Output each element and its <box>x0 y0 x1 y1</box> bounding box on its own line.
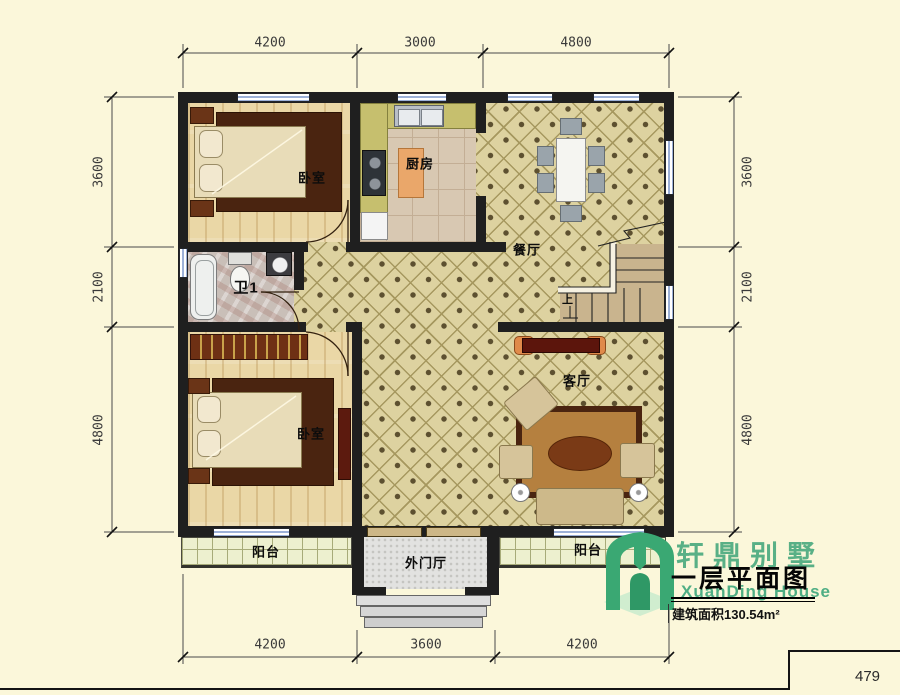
label-bath: 卫1 <box>233 277 258 298</box>
side-table <box>511 483 530 502</box>
wall-mid-right <box>346 242 506 252</box>
armchair <box>499 445 533 479</box>
frame-corner-line <box>788 650 900 652</box>
window-bathroom <box>179 248 188 278</box>
dim-bottom-3: 4200 <box>566 638 597 653</box>
dim-top-3: 4800 <box>560 36 591 51</box>
stove <box>362 150 386 196</box>
dim-right-3: 4800 <box>741 414 756 445</box>
window-dining-right <box>593 93 640 102</box>
kitchen-sink <box>394 105 444 127</box>
dim-left-3: 4800 <box>92 414 107 445</box>
wall-bed2-right <box>352 332 362 526</box>
wall-foyer-stub-left <box>352 587 386 595</box>
title-underline <box>671 597 815 599</box>
label-dining: 餐厅 <box>513 240 541 259</box>
dining-chair <box>560 118 582 135</box>
sink-basin <box>421 109 443 126</box>
dining-chair <box>560 205 582 222</box>
bathtub <box>190 254 217 320</box>
wall-left <box>178 92 188 537</box>
wall-kitchen-dining-top <box>476 103 486 133</box>
tv-stand-bar <box>522 338 600 353</box>
label-foyer: 外门厅 <box>405 553 447 572</box>
pillow <box>197 396 221 423</box>
wall-living-dining <box>498 322 664 332</box>
wall-bath-right <box>294 252 304 290</box>
window-bedroom-bottom <box>213 528 290 537</box>
window-dining-left <box>507 93 553 102</box>
rug-oval <box>548 436 612 471</box>
label-kitchen: 厨房 <box>406 154 434 173</box>
dining-table <box>556 138 586 202</box>
bathtub-inner <box>195 260 214 316</box>
label-bedroom-bottom: 卧室 <box>297 424 325 443</box>
label-balcony-left: 阳台 <box>252 542 280 561</box>
entry-step <box>364 617 483 628</box>
wardrobe <box>190 334 308 360</box>
window-bedroom-top <box>237 93 310 102</box>
side-table <box>629 483 648 502</box>
dim-left-1: 3600 <box>92 156 107 187</box>
pillow <box>197 430 221 457</box>
pillow <box>199 164 223 192</box>
wall-mid-left <box>188 242 308 252</box>
wall-bed2-top <box>188 322 306 332</box>
wall-bed2-hinge <box>346 322 362 332</box>
nightstand <box>188 378 210 394</box>
nightstand <box>190 107 214 124</box>
floorplan-page: 卧室 厨房 餐厅 卫1 卧室 客厅 阳台 外门厅 阳台 上 4200 3000 … <box>0 0 900 695</box>
dim-right-1: 3600 <box>741 156 756 187</box>
label-living: 客厅 <box>563 371 591 390</box>
window-dining-east <box>665 140 674 195</box>
sofa <box>536 488 624 525</box>
bathroom-vanity <box>266 252 292 276</box>
building-area-text: 建筑面积130.54m² <box>668 604 780 623</box>
window-kitchen <box>397 93 447 102</box>
label-stairs-up: 上 <box>562 291 574 307</box>
entry-door-leaf <box>426 527 481 537</box>
dim-top-2: 3000 <box>404 36 435 51</box>
dim-right-2: 2100 <box>741 271 756 302</box>
sink-basin <box>398 109 420 126</box>
wall-foyer-stub-right <box>465 587 499 595</box>
dim-top-1: 4200 <box>254 36 285 51</box>
nightstand <box>188 468 210 484</box>
window-stairs <box>665 285 674 320</box>
toilet-tank <box>228 252 252 265</box>
frame-corner-connector <box>788 650 790 690</box>
pillow <box>199 130 223 158</box>
dining-chair <box>537 146 554 166</box>
tv-cabinet <box>338 408 351 480</box>
tv-stand <box>514 336 606 353</box>
fridge <box>361 212 388 240</box>
label-bedroom-top: 卧室 <box>298 168 326 187</box>
dim-left-2: 2100 <box>92 271 107 302</box>
entry-step <box>360 606 487 617</box>
armchair <box>620 443 655 478</box>
dim-bottom-1: 4200 <box>254 638 285 653</box>
dining-chair <box>537 173 554 193</box>
title-underline <box>671 601 815 602</box>
dining-chair <box>588 146 605 166</box>
frame-bottom-line <box>0 688 789 690</box>
drawing-title: 一层平面图 <box>671 559 811 595</box>
entry-door-leaf <box>367 527 422 537</box>
page-number: 479 <box>855 668 880 685</box>
nightstand <box>190 200 214 217</box>
dim-bottom-2: 3600 <box>410 638 441 653</box>
logo-arch-inner <box>630 573 650 610</box>
dining-chair <box>588 173 605 193</box>
logo-pendant <box>634 546 646 570</box>
wall-bed1-kitchen <box>350 103 360 249</box>
entry-step <box>356 595 491 606</box>
